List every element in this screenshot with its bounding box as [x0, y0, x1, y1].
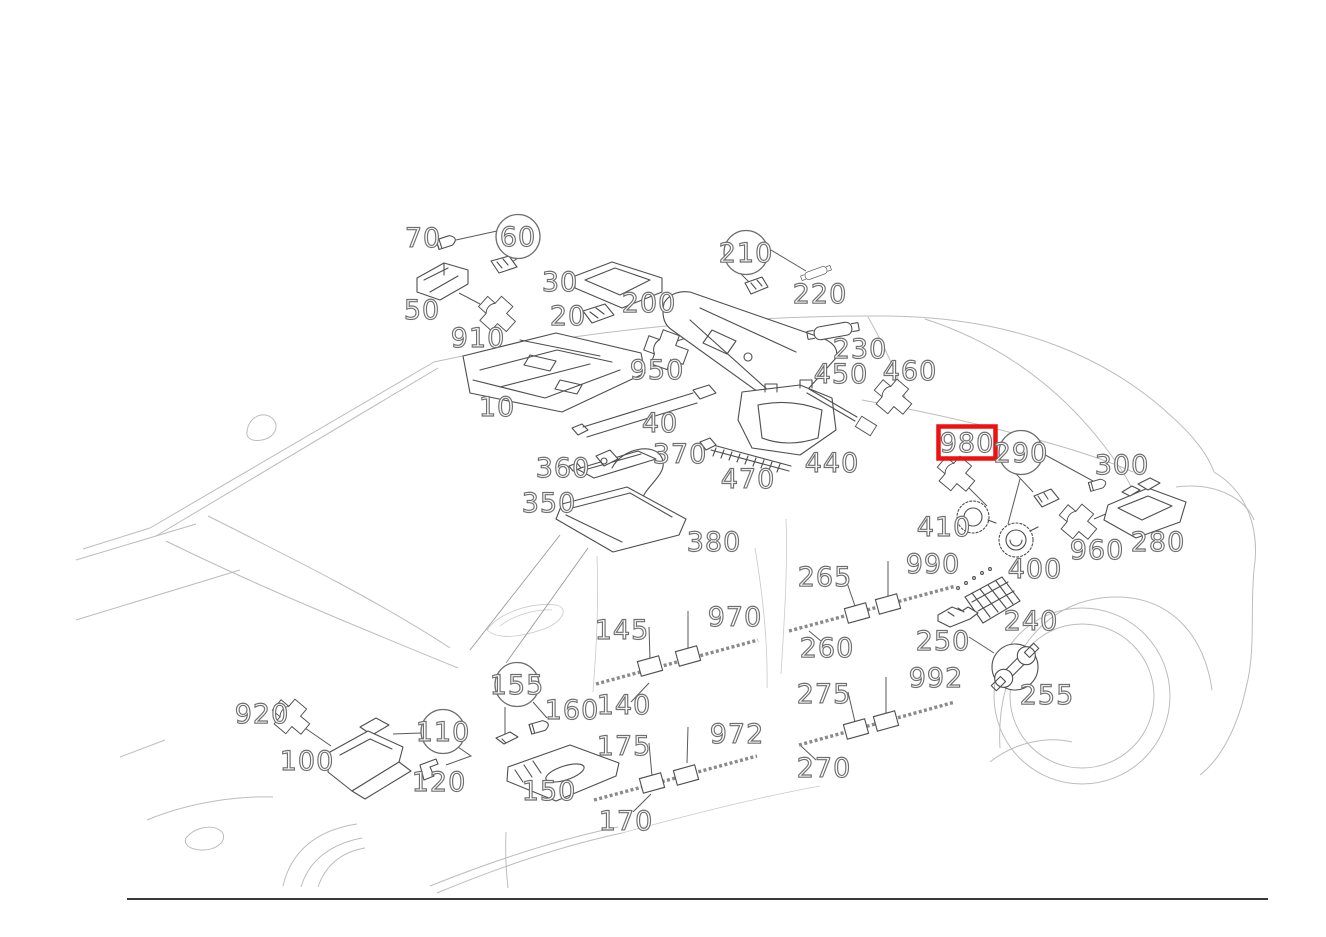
callout-150[interactable]: 150	[522, 776, 577, 807]
callout-210[interactable]: 210	[719, 238, 774, 269]
callout-50[interactable]: 50	[404, 295, 440, 326]
part-sketch-155-connector[interactable]	[496, 732, 518, 744]
callout-265[interactable]: 265	[798, 562, 853, 593]
callout-470[interactable]: 470	[721, 464, 776, 495]
callout-170[interactable]: 170	[599, 806, 654, 837]
callout-250[interactable]: 250	[916, 626, 971, 657]
callout-460[interactable]: 460	[883, 356, 938, 387]
callout-380[interactable]: 380	[687, 527, 742, 558]
part-sketch-20[interactable]	[583, 304, 614, 323]
callout-360[interactable]: 360	[536, 453, 591, 484]
callout-290[interactable]: 290	[994, 438, 1049, 469]
callout-370[interactable]: 370	[653, 439, 708, 470]
callout-992[interactable]: 992	[909, 663, 964, 694]
callout-910[interactable]: 910	[451, 323, 506, 354]
callout-70[interactable]: 70	[405, 223, 441, 254]
callout-400[interactable]: 400	[1008, 554, 1063, 585]
part-sketch-440[interactable]	[738, 380, 836, 455]
callout-980[interactable]: 980	[940, 428, 995, 459]
callout-160[interactable]: 160	[545, 695, 600, 726]
callout-30[interactable]: 30	[542, 267, 578, 298]
callout-10[interactable]: 10	[479, 392, 515, 423]
callout-260[interactable]: 260	[800, 633, 855, 664]
parts-diagram-page: 7060509103020200950210220230450460980290…	[0, 0, 1326, 937]
callout-410[interactable]: 410	[917, 512, 972, 543]
part-sketch-400[interactable]	[999, 523, 1038, 557]
part-sketch-250[interactable]	[938, 607, 978, 627]
callout-970[interactable]: 970	[708, 602, 763, 633]
callout-275[interactable]: 275	[797, 679, 852, 710]
callout-960[interactable]: 960	[1070, 535, 1125, 566]
callout-280[interactable]: 280	[1131, 527, 1186, 558]
callout-110[interactable]: 110	[416, 717, 471, 748]
callout-145[interactable]: 145	[595, 615, 650, 646]
callout-950[interactable]: 950	[630, 355, 685, 386]
callout-972[interactable]: 972	[710, 719, 765, 750]
part-sketch-100[interactable]	[328, 718, 411, 799]
callout-155[interactable]: 155	[490, 670, 545, 701]
car-outline	[76, 316, 1255, 893]
callout-990[interactable]: 990	[906, 549, 961, 580]
callout-240[interactable]: 240	[1004, 606, 1059, 637]
exploded-view-canvas: 7060509103020200950210220230450460980290…	[0, 0, 1326, 937]
callout-60[interactable]: 60	[500, 222, 536, 253]
callout-40[interactable]: 40	[642, 408, 678, 439]
callout-20[interactable]: 20	[550, 301, 586, 332]
callout-440[interactable]: 440	[805, 448, 860, 479]
part-sketch-210-connector[interactable]	[745, 277, 768, 294]
part-sketch-290-connector[interactable]	[1034, 489, 1059, 507]
callout-200[interactable]: 200	[622, 288, 677, 319]
callout-350[interactable]: 350	[522, 488, 577, 519]
callout-920[interactable]: 920	[235, 699, 290, 730]
callout-270[interactable]: 270	[797, 753, 852, 784]
callout-450[interactable]: 450	[814, 359, 869, 390]
callout-120[interactable]: 120	[412, 767, 467, 798]
callout-175[interactable]: 175	[597, 731, 652, 762]
callout-255[interactable]: 255	[1020, 680, 1075, 711]
callout-300[interactable]: 300	[1095, 450, 1150, 481]
callout-100[interactable]: 100	[280, 746, 335, 777]
callout-220[interactable]: 220	[793, 279, 848, 310]
callout-140[interactable]: 140	[597, 690, 652, 721]
